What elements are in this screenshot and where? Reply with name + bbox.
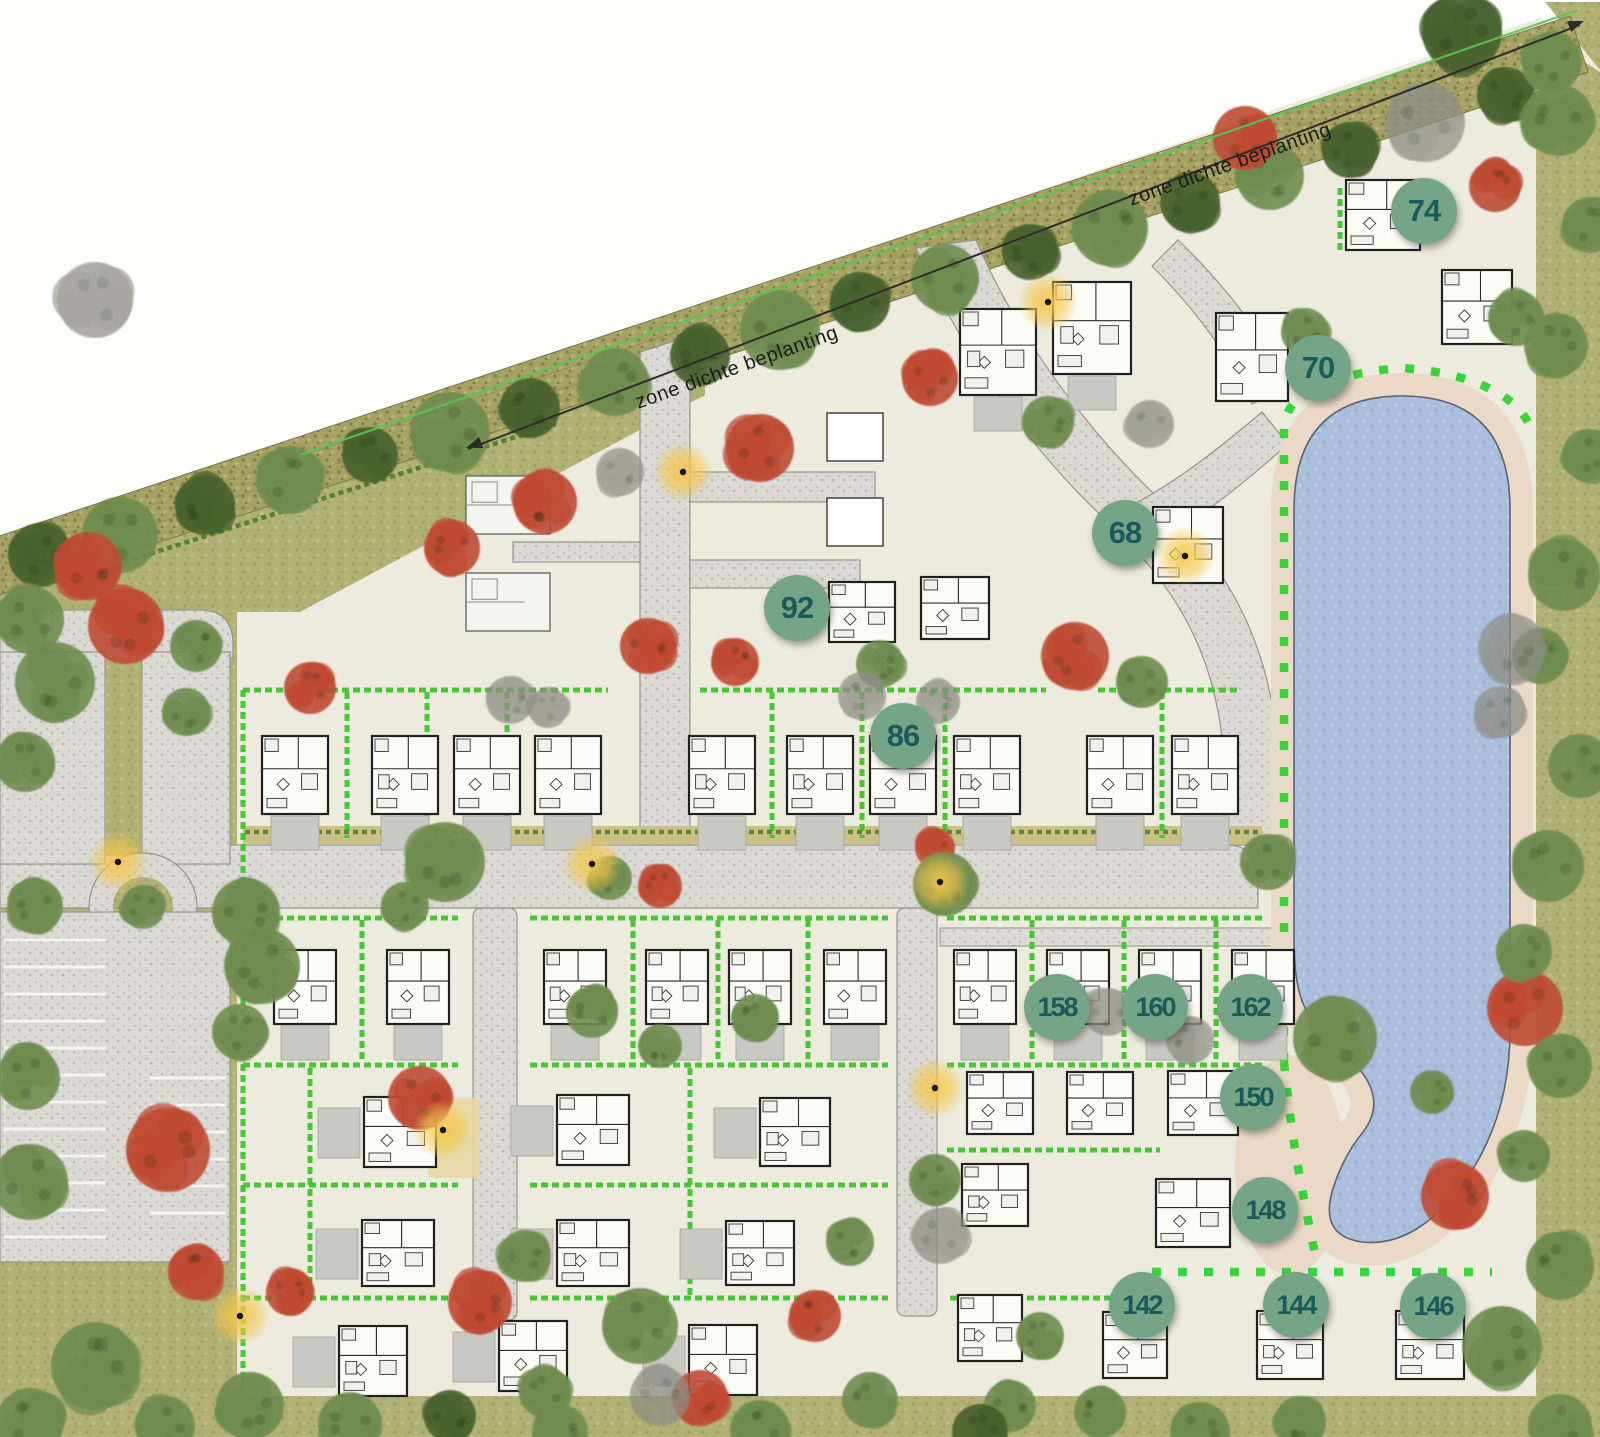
house-plan (689, 736, 755, 814)
lot-number-badge[interactable]: 146 (1400, 1273, 1466, 1339)
street-lamp-icon (905, 1058, 965, 1118)
lot-number-badge[interactable]: 162 (1217, 974, 1283, 1040)
driveway-pad (698, 816, 746, 850)
site-plan-map (0, 0, 1600, 1437)
driveway-pad (271, 816, 319, 850)
lot-number-badge[interactable]: 86 (870, 703, 936, 769)
house-plan (962, 1164, 1028, 1226)
lot-number-badge[interactable]: 144 (1263, 1272, 1329, 1338)
house-plan (557, 1095, 629, 1165)
house-plan (787, 736, 853, 814)
garage-pad (453, 1332, 495, 1382)
garage-pad (318, 1108, 360, 1158)
house-plan (372, 736, 438, 814)
house-plan (454, 736, 520, 814)
tree (638, 864, 682, 908)
garage-pad (680, 1229, 722, 1279)
garage-pad (714, 1108, 756, 1158)
house-plan (954, 950, 1016, 1024)
house-plan (339, 1326, 407, 1396)
tree (284, 662, 336, 714)
street-lamp-icon (910, 852, 970, 912)
street-lamp-icon (88, 832, 148, 892)
street-lamp-icon (562, 834, 622, 894)
tree (602, 1288, 678, 1364)
house-plan (362, 1220, 434, 1286)
house-plan (262, 736, 328, 814)
lot-number-badge[interactable]: 158 (1024, 974, 1090, 1040)
tree (1016, 1312, 1064, 1360)
driveway-pad (963, 816, 1011, 850)
tree (723, 414, 794, 482)
tree (1512, 830, 1584, 902)
driveway-pad (1068, 376, 1116, 410)
driveway-pad (394, 1026, 442, 1060)
house-plan (1067, 1072, 1133, 1134)
street-lamp-icon (653, 442, 713, 502)
tree (620, 618, 679, 674)
tree (1240, 834, 1296, 890)
house-plan (557, 1220, 629, 1286)
driveway-pad (961, 1026, 1009, 1060)
tree (1410, 1070, 1454, 1114)
street-lamp-icon (413, 1100, 473, 1160)
tree (52, 262, 134, 338)
lot-number-badge[interactable]: 150 (1220, 1064, 1286, 1130)
lot-number-badge[interactable]: 92 (764, 575, 830, 641)
house-plan (646, 950, 708, 1024)
lot-number-badge[interactable]: 142 (1109, 1272, 1175, 1338)
garage-pad (511, 1106, 553, 1156)
lot-number-badge[interactable]: 148 (1232, 1177, 1298, 1243)
tree (342, 427, 398, 483)
garage-pad (293, 1337, 335, 1387)
house-plan (827, 498, 883, 546)
house-plan (466, 573, 550, 631)
driveway-pad (831, 1026, 879, 1060)
driveway-3 (513, 542, 640, 562)
tree (638, 1024, 682, 1068)
house-plan (921, 577, 989, 639)
house-plan (827, 413, 883, 461)
site-plan: 7470689286158160162150148142144146 zone … (0, 0, 1600, 1437)
house-plan (960, 309, 1036, 395)
house-plan (824, 950, 886, 1024)
driveway-pad (281, 1026, 329, 1060)
house-plan (1172, 736, 1238, 814)
house-plan (760, 1098, 830, 1166)
tree (1041, 622, 1109, 691)
house-plan (967, 1072, 1033, 1134)
street-lamp-icon (210, 1286, 270, 1346)
house-plan (1087, 736, 1153, 814)
tree (1116, 656, 1168, 708)
house-plan (829, 582, 895, 642)
house-plan (535, 736, 601, 814)
house-plan (1216, 313, 1288, 401)
driveway-strip (940, 928, 1278, 946)
driveway-pad (974, 397, 1022, 431)
road-north (640, 336, 690, 845)
house-plan (958, 1295, 1022, 1361)
street-lamp-icon (1018, 272, 1078, 332)
tree (410, 392, 490, 474)
house-plan (726, 1221, 794, 1285)
house-plan (387, 950, 449, 1024)
lot-number-badge[interactable]: 160 (1122, 974, 1188, 1040)
lot-number-badge[interactable]: 68 (1092, 500, 1158, 566)
garage-pad (316, 1229, 358, 1279)
driveway-pad (1096, 816, 1144, 850)
tree (1002, 224, 1061, 280)
house-plan (954, 736, 1020, 814)
driveway-pad (796, 816, 844, 850)
tree (711, 638, 759, 686)
house-plan (1156, 1179, 1230, 1247)
driveway-pad (1181, 816, 1229, 850)
lot-number-badge[interactable]: 74 (1391, 178, 1457, 244)
lot-number-badge[interactable]: 70 (1285, 335, 1351, 401)
street-lamp-icon (1155, 526, 1215, 586)
tree (224, 928, 300, 1005)
